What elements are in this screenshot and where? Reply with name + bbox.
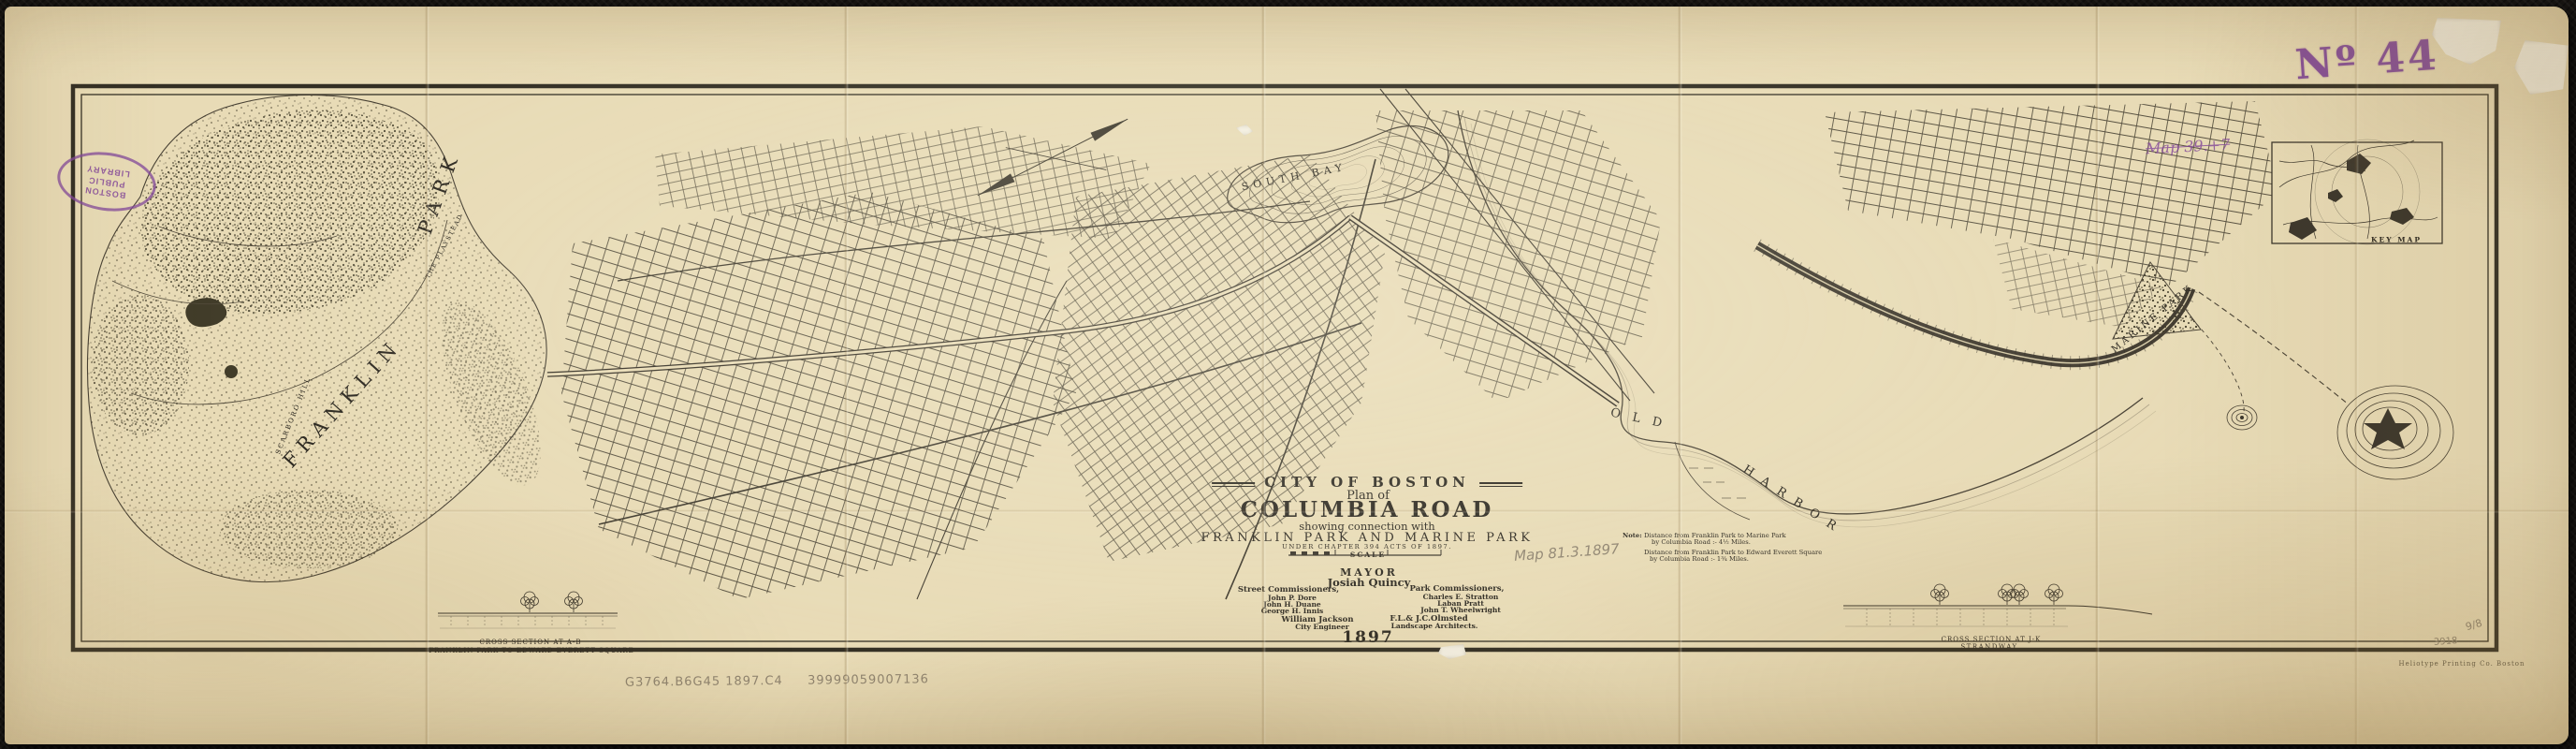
note-label: Note: bbox=[1623, 533, 1642, 539]
pencil-call-number: G3764.B6G45 1897.C4 39999059007136 bbox=[625, 673, 929, 688]
library-stamp-text: BOSTON PUBLIC LIBRARY bbox=[72, 161, 141, 201]
street-commissioner-3: George H. Innis bbox=[1261, 608, 1324, 615]
landscape-architect-title: Landscape Architects. bbox=[1391, 623, 1478, 630]
map-sheet-stage: FRANKLIN PARK SCARBORO HILL THE PLAYSTEA… bbox=[0, 0, 2576, 749]
cross-section-left-title: CROSS SECTION AT A-B bbox=[480, 639, 582, 646]
scale-label: SCALE bbox=[1350, 551, 1386, 559]
purple-handwritten-note: Map 39.+7 bbox=[2146, 138, 2231, 157]
title-chapter-line: UNDER CHAPTER 394 ACTS OF 1897. bbox=[1282, 544, 1452, 551]
mayor-name: Josiah Quincy bbox=[1328, 578, 1411, 589]
note-line2b: by Columbia Road :- 1¾ Miles. bbox=[1650, 556, 1749, 563]
title-city-line: CITY OF BOSTON bbox=[1212, 476, 1522, 490]
pencil-number-mark: 3918 bbox=[2434, 637, 2458, 648]
cross-section-right-drawing bbox=[1843, 584, 2152, 626]
cross-section-right-title: CROSS SECTION AT J-K bbox=[1942, 637, 2042, 643]
note-line1b: by Columbia Road :- 4½ Miles. bbox=[1652, 539, 1751, 546]
title-city-text: CITY OF BOSTON bbox=[1264, 476, 1470, 490]
title-main: COLUMBIA ROAD bbox=[1241, 499, 1494, 521]
franklin-park-area bbox=[88, 95, 561, 582]
castle-island bbox=[2337, 386, 2453, 479]
cross-section-right-subtitle: STRANDWAY bbox=[1960, 644, 2017, 651]
cross-section-left-drawing bbox=[438, 592, 618, 628]
map-artwork bbox=[5, 7, 2569, 744]
title-rule-right bbox=[1479, 482, 1522, 484]
title-rule-left bbox=[1212, 482, 1255, 484]
engineer-title: City Engineer bbox=[1295, 624, 1348, 631]
call-number-text: G3764.B6G45 1897.C4 bbox=[625, 674, 783, 690]
key-map-inset bbox=[2272, 140, 2442, 244]
key-map-label: KEY MAP bbox=[2371, 236, 2422, 243]
cross-section-left-subtitle: FRANKLIN PARK TO EDWARD EVERETT SQUARE bbox=[429, 648, 634, 654]
accession-number-stamp: Nº 44 bbox=[2294, 36, 2440, 87]
barcode-number-text: 39999059007136 bbox=[808, 672, 929, 687]
title-year: 1897 bbox=[1342, 630, 1393, 646]
paper-sheet: FRANKLIN PARK SCARBORO HILL THE PLAYSTEA… bbox=[5, 7, 2569, 744]
park-commissioner-3: John T. Wheelwright bbox=[1420, 607, 1501, 614]
printer-imprint: Heliotype Printing Co. Boston bbox=[2398, 661, 2525, 668]
small-island bbox=[2227, 405, 2257, 430]
